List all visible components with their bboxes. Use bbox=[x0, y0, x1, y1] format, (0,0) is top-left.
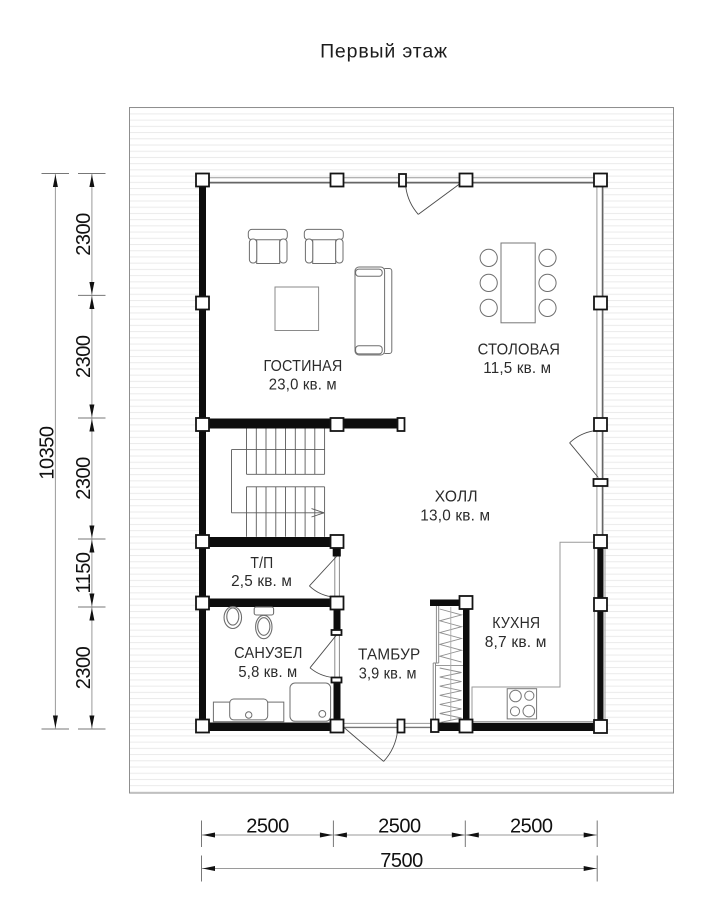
svg-text:2300: 2300 bbox=[73, 335, 95, 378]
svg-text:10350: 10350 bbox=[37, 426, 59, 479]
svg-text:ТАМБУР: ТАМБУР bbox=[358, 647, 421, 664]
svg-text:Первый этаж: Первый этаж bbox=[320, 41, 448, 63]
svg-text:2300: 2300 bbox=[73, 213, 95, 256]
svg-text:11,5 кв. м: 11,5 кв. м bbox=[483, 360, 551, 377]
svg-text:КУХНЯ: КУХНЯ bbox=[492, 615, 540, 632]
svg-text:23,0 кв. м: 23,0 кв. м bbox=[269, 377, 337, 394]
svg-text:ХОЛЛ: ХОЛЛ bbox=[435, 489, 478, 506]
svg-text:1150: 1150 bbox=[73, 552, 95, 593]
svg-text:3,9 кв. м: 3,9 кв. м bbox=[359, 666, 417, 683]
svg-text:5,8 кв. м: 5,8 кв. м bbox=[238, 664, 297, 681]
svg-text:2500: 2500 bbox=[246, 816, 289, 838]
svg-text:Т/П: Т/П bbox=[250, 555, 273, 572]
svg-text:2500: 2500 bbox=[510, 816, 553, 838]
svg-text:САНУЗЕЛ: САНУЗЕЛ bbox=[234, 645, 303, 662]
svg-text:8,7 кв. м: 8,7 кв. м bbox=[485, 634, 547, 651]
svg-text:13,0 кв. м: 13,0 кв. м bbox=[420, 508, 490, 525]
svg-text:ГОСТИНАЯ: ГОСТИНАЯ bbox=[264, 358, 343, 375]
svg-text:7500: 7500 bbox=[380, 850, 423, 872]
svg-text:2,5 кв. м: 2,5 кв. м bbox=[231, 573, 292, 590]
svg-text:2300: 2300 bbox=[73, 646, 95, 689]
svg-text:СТОЛОВАЯ: СТОЛОВАЯ bbox=[478, 342, 561, 359]
svg-text:2300: 2300 bbox=[73, 457, 95, 500]
svg-text:2500: 2500 bbox=[378, 816, 421, 838]
